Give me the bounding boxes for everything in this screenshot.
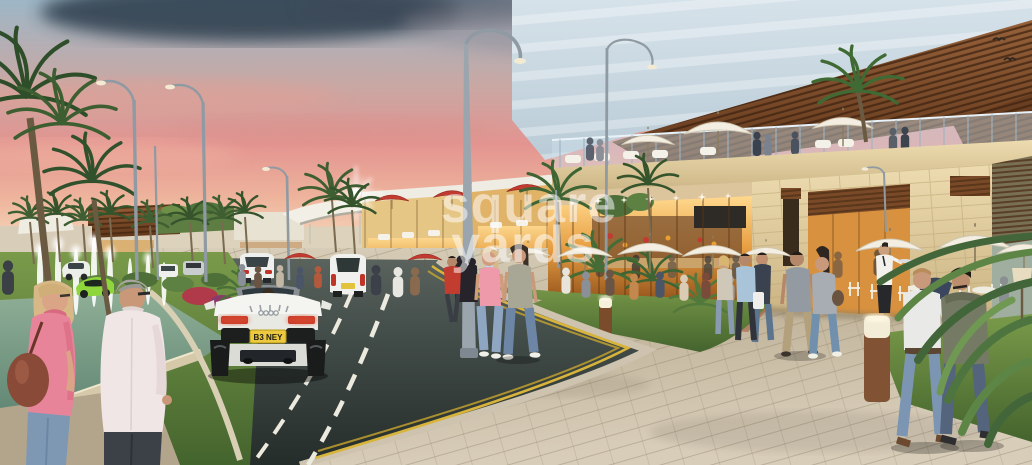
bollard-light-large — [864, 314, 890, 402]
license-plate: B3 NEY — [254, 333, 284, 342]
white-car-mid — [158, 264, 178, 277]
rendered-streetscape-image: B3 NEY — [0, 0, 1032, 465]
white-hatchback — [330, 254, 366, 297]
watermark-line2: yards — [451, 216, 595, 274]
silver-car-mid — [183, 261, 204, 275]
watermark: square yards — [441, 176, 618, 274]
